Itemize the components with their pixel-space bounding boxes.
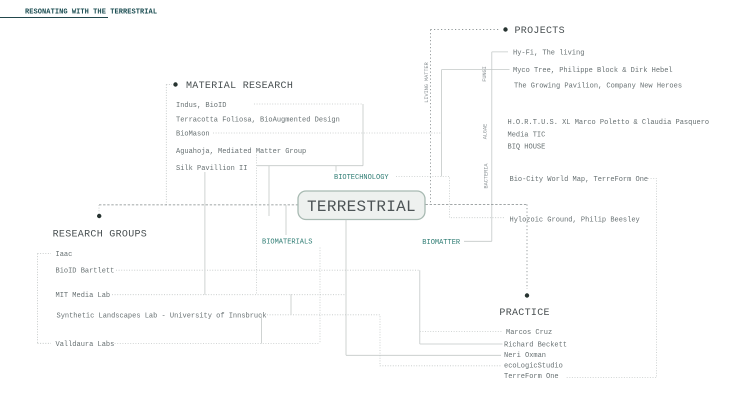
svg-text:BIOMATTER: BIOMATTER	[422, 239, 461, 247]
svg-text:Iaac: Iaac	[56, 251, 73, 259]
svg-text:PRACTICE: PRACTICE	[499, 308, 549, 319]
svg-text:Aguahoja, Mediated Matter Grou: Aguahoja, Mediated Matter Group	[176, 148, 306, 156]
svg-text:MATERIAL RESEARCH: MATERIAL RESEARCH	[186, 81, 293, 92]
svg-text:The Growing Pavilion, Company: The Growing Pavilion, Company New Heroes	[514, 82, 682, 90]
svg-text:Myco Tree, Philippe Block & Di: Myco Tree, Philippe Block & Dirk Hebel	[513, 67, 673, 75]
svg-text:BACTERIA: BACTERIA	[484, 163, 490, 189]
svg-text:Silk Pavillion II: Silk Pavillion II	[176, 165, 247, 173]
svg-text:Hylozoic Ground, Philip Beesle: Hylozoic Ground, Philip Beesley	[510, 216, 640, 224]
svg-text:Hy-Fi, The living: Hy-Fi, The living	[513, 49, 584, 57]
svg-text:Marcos Cruz: Marcos Cruz	[506, 329, 552, 337]
svg-text:Neri Oxman: Neri Oxman	[504, 352, 546, 360]
svg-text:LIVING MATTER: LIVING MATTER	[424, 62, 430, 102]
svg-text:Media TIC: Media TIC	[508, 132, 546, 140]
svg-text:Valldaura Labs: Valldaura Labs	[56, 341, 115, 349]
svg-text:BIQ HOUSE: BIQ HOUSE	[508, 144, 546, 152]
svg-text:Terracotta Foliosa, BioAugment: Terracotta Foliosa, BioAugmented Design	[176, 116, 340, 124]
svg-text:BioMason: BioMason	[176, 131, 210, 139]
svg-text:H.O.R.T.U.S. XL Marco Poletto: H.O.R.T.U.S. XL Marco Poletto & Claudia …	[508, 119, 710, 127]
svg-text:MIT Media Lab: MIT Media Lab	[56, 292, 111, 300]
svg-text:PROJECTS: PROJECTS	[515, 26, 565, 37]
svg-text:ALGAE: ALGAE	[483, 124, 489, 140]
svg-text:RESEARCH GROUPS: RESEARCH GROUPS	[53, 230, 148, 241]
svg-text:BioID Bartlett: BioID Bartlett	[56, 268, 115, 276]
svg-text:Indus, BioID: Indus, BioID	[176, 102, 226, 110]
svg-text:RESONATING WITH THE TERRESTRIA: RESONATING WITH THE TERRESTRIAL	[25, 9, 157, 17]
svg-text:Richard Beckett: Richard Beckett	[504, 342, 567, 350]
svg-text:TerreForm One: TerreForm One	[504, 373, 559, 381]
svg-text:TERRESTRIAL: TERRESTRIAL	[307, 198, 416, 216]
svg-text:BIOMATERIALS: BIOMATERIALS	[262, 239, 312, 247]
svg-text:FUNGI: FUNGI	[482, 66, 488, 82]
svg-text:BIOTECHNOLOGY: BIOTECHNOLOGY	[334, 174, 389, 182]
svg-text:ecoLogicStudio: ecoLogicStudio	[504, 363, 563, 371]
svg-text:Bio-City World Map, TerreForm: Bio-City World Map, TerreForm One	[510, 176, 649, 184]
svg-text:Synthetic Landscapes Lab - Uni: Synthetic Landscapes Lab - University of…	[57, 312, 267, 320]
